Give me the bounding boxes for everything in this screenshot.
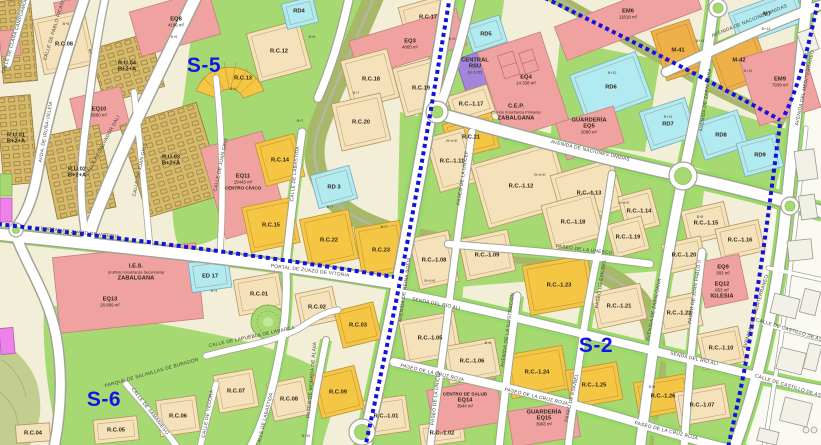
density-tag: B+8 [485, 341, 492, 345]
parcel-label: R.C.17 [419, 15, 437, 21]
parcel-label: R.C.-1.22 [667, 311, 692, 317]
density-tag: B+7 [327, 205, 334, 209]
parcel-label: RD7 [662, 122, 674, 128]
parcel-label: RD5 [480, 32, 492, 38]
parcel-label: IGLESIA [710, 293, 734, 299]
density-tag: B+10 [608, 71, 617, 75]
density-tag: B+13 [664, 115, 673, 119]
parcel-label: R.C.-1.13 [577, 191, 603, 197]
parcel-label: (Centro Enseñanza Primaria) [491, 111, 541, 115]
parcel-label: ED 17 [202, 274, 218, 280]
parcel-label: M-41 [671, 48, 685, 54]
parcel-label: R.C.08 [280, 397, 299, 403]
parcel-label: R.C.-1.23 [547, 283, 573, 289]
parcel-label: R.C.03 [349, 323, 368, 329]
density-tag: B+13 [762, 27, 771, 31]
density-tag: B+4 [211, 289, 218, 293]
zoning-map: R.C.08R.U.04B+2+AEQ84186 m²EQ105680 m²R.… [0, 0, 821, 445]
parcel [0, 327, 15, 354]
parcel-label: 853 m² [715, 288, 729, 293]
parcel-label: 11818 m² [619, 14, 638, 19]
parcel-label: RD4 [293, 9, 305, 15]
parcel-label: R.C.-1.18 [561, 220, 587, 226]
parcel-label: R.C.-1.26 [651, 394, 677, 400]
parcel-label: R.C.-1.11 [440, 159, 465, 165]
density-tag: B+6 [309, 35, 316, 39]
parcel-label: 28.899 m² [100, 302, 120, 307]
parcel-label: R.C.13 [234, 76, 253, 82]
parcel-label: R.C.-1.16 [728, 238, 754, 244]
density-tag: B+4+E [534, 173, 546, 177]
parcel-label: R.C.-1.12 [509, 184, 534, 190]
parcel-label: R.C.-1.25 [582, 383, 608, 389]
parcel-label: R.C.-1.17 [459, 102, 484, 108]
parcel-label: R.C.06 [169, 414, 188, 420]
parcel-label: GUARDERÍA [526, 408, 562, 416]
parcel-label: RD8 [715, 133, 727, 139]
parcel-label: B+2+A [7, 138, 26, 144]
parcel-label: 3944 m² [457, 403, 474, 408]
parcel-label: R.C.04 [24, 431, 43, 437]
parcel-label: RD6 [605, 85, 617, 91]
density-tag: B+8 [697, 215, 704, 219]
density-tag: B+7 [381, 225, 388, 229]
parcel-label: ZABALGANA [498, 115, 536, 121]
parcel-label: R.C.-1.19 [616, 235, 642, 241]
zoning-map-canvas: R.C.08R.U.04B+2+AEQ84186 m²EQ105680 m²R.… [0, 0, 821, 445]
density-tag: B+14 [696, 39, 705, 43]
parcel-label: RD9 [754, 153, 766, 159]
parcel-label: R.C.-1.01 [374, 414, 400, 420]
parcel-label: R.C.20 [352, 120, 370, 126]
parcel-label: R.C.05 [107, 428, 126, 434]
parcel-label: B+2+A [118, 66, 137, 72]
parcel-label: R.C.-1.06 [460, 359, 486, 365]
parcel-label: R.C.07 [227, 389, 245, 395]
parcel-label: GUARDERÍA [571, 116, 607, 124]
density-tag: B+15 [302, 434, 311, 438]
parcel-label: R.C.-1.10 [709, 346, 734, 352]
sector-label-s-6: S-6 [87, 388, 121, 411]
parcel-label: 4865 m² [402, 44, 419, 49]
density-tag: B+7 [353, 91, 360, 95]
parcel [0, 174, 12, 196]
parcel-label: R.C.15 [262, 223, 281, 229]
parcel-label: R.C.-1.07 [690, 403, 715, 409]
parcel [0, 198, 12, 222]
density-tag: B+4+E [424, 279, 436, 283]
parcel-label: R.C.22 [320, 238, 338, 244]
parcel-label: 7939 m² [772, 82, 789, 87]
parcel-label: R.C.-1.15 [694, 221, 720, 227]
parcel-label: R.C.-1.20 [672, 253, 697, 259]
density-tag: B+4+E [618, 201, 630, 205]
parcel-label: B+2+A [68, 172, 87, 178]
sector-label-s-2: S-2 [579, 334, 613, 357]
parcel-label: R.C.12 [270, 49, 288, 55]
parcel-label: R.C.21 [462, 135, 481, 141]
parcel-label: 3963 m² [536, 421, 553, 426]
parcel-label: R.C.-1.14 [627, 209, 653, 215]
parcel-label: I.E.S. [129, 264, 144, 270]
parcel-label: R.C.-1.24 [525, 370, 551, 376]
density-tag: B+4 [230, 87, 237, 91]
parcel-label: M-42 [732, 58, 745, 64]
parcel-label: R.C.14 [271, 158, 290, 164]
parcel-label: R.C.01 [250, 292, 269, 298]
parcel-label: 2080 m² [581, 129, 598, 134]
parcel-label: B+2+A [162, 160, 181, 166]
parcel-label: R.C.08 [55, 42, 74, 48]
parcel-label: ZABALGANA [118, 275, 156, 281]
density-tag: B+6 [449, 37, 456, 41]
parcel-label: RD 3 [327, 185, 341, 191]
parcel-label: (U-1.02) [468, 70, 483, 74]
parcel-label: 383 m² [716, 270, 730, 275]
parcel-label: R.C.-1.09 [475, 253, 501, 259]
parcel-label: R.C.-1.08 [422, 258, 448, 264]
parcel-label: R.C.18 [362, 77, 381, 83]
density-tag: B+14 [744, 69, 753, 73]
parcel-label: R.C.-1.02 [430, 431, 455, 437]
parcel-label: R.C.02 [308, 305, 326, 311]
parcel-label: R.C.09 [329, 390, 348, 396]
parcel-label: R.C.-1.05 [418, 336, 444, 342]
parcel-label: R.C.-1.21 [607, 304, 633, 310]
density-tag: B+8 [649, 385, 656, 389]
density-tag: B+7 [297, 119, 304, 123]
parcel-label: R.C.19 [412, 86, 431, 92]
parcel-label: CENTRO DE SALUD [443, 392, 488, 397]
parcel-label: C.E.P. [508, 104, 524, 110]
parcel-label: (Instituto Enseñanza Secundaria) [108, 271, 165, 275]
density-tag: B+5 [63, 22, 70, 26]
parcel-label: 4186 m² [168, 22, 185, 27]
density-tag: B+6 [171, 35, 178, 39]
parcel-label: 15445 m² [234, 180, 253, 185]
parcel-label: R.C.23 [372, 248, 391, 254]
parcel-label: 5680 m² [91, 112, 108, 117]
parcel-label: RSU [469, 64, 481, 70]
parcel-label: 14.338 m² [516, 80, 536, 85]
density-tag: B+4+E [446, 139, 458, 143]
parcel-label: CENTRO CÍVICO [225, 183, 262, 190]
sector-label-s-5: S-5 [187, 54, 221, 77]
